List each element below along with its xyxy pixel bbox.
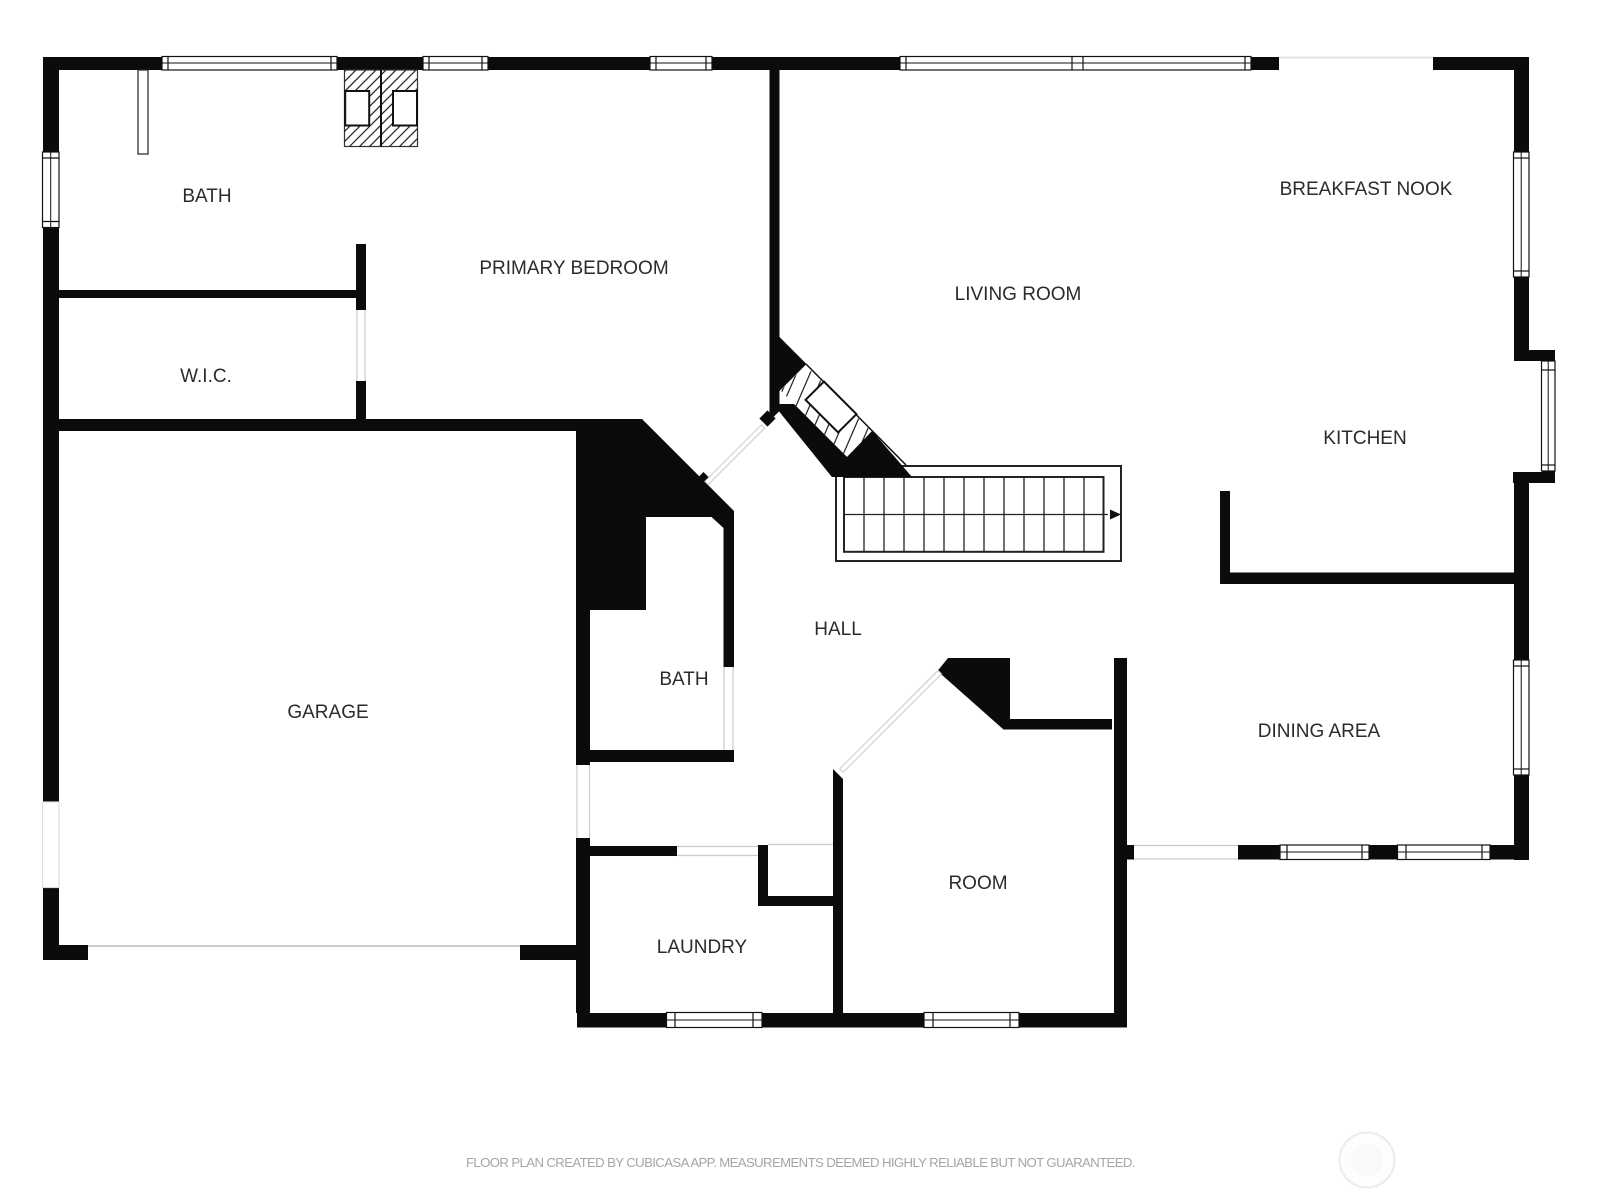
svg-text:W.I.C.: W.I.C. [180,366,232,387]
svg-text:BATH: BATH [182,186,231,207]
svg-text:LIVING ROOM: LIVING ROOM [955,284,1082,305]
svg-text:LAUNDRY: LAUNDRY [657,937,748,958]
svg-text:BREAKFAST NOOK: BREAKFAST NOOK [1280,179,1453,200]
svg-text:HALL: HALL [814,619,862,640]
svg-text:BATH: BATH [659,669,708,690]
svg-text:GARAGE: GARAGE [287,702,368,723]
svg-text:FLOOR PLAN CREATED BY CUBICASA: FLOOR PLAN CREATED BY CUBICASA APP. MEAS… [466,1155,1135,1170]
svg-text:KITCHEN: KITCHEN [1323,428,1406,449]
svg-text:DINING AREA: DINING AREA [1258,721,1381,742]
svg-text:ROOM: ROOM [948,873,1007,894]
svg-text:PRIMARY BEDROOM: PRIMARY BEDROOM [479,258,668,279]
